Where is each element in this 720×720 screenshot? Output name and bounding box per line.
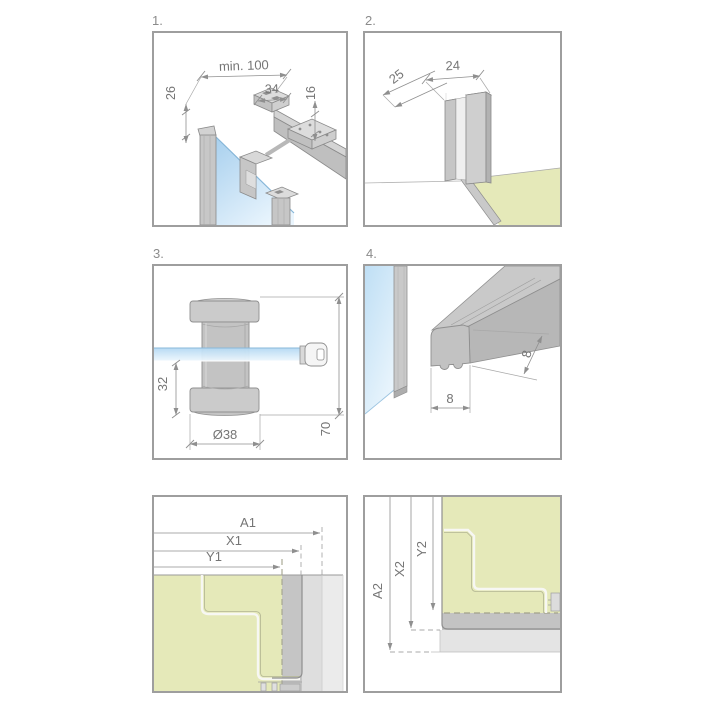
- dimension-25: 25: [383, 66, 447, 107]
- panel-1-illustration: min. 100 34 16 26: [154, 33, 346, 225]
- panel-1: min. 100 34 16 26: [152, 31, 348, 227]
- dimension-8-width: 8: [431, 365, 470, 413]
- dimension-x1: X1: [154, 533, 299, 551]
- dim-label-y1: Y1: [206, 549, 222, 564]
- dimension-x2: X2: [392, 497, 411, 628]
- dim-label-24: 24: [445, 58, 460, 74]
- panel-5: A1 X1 Y1: [152, 495, 348, 693]
- glass-edge-profile: [394, 266, 407, 398]
- panel-4-number: 4.: [366, 246, 377, 261]
- wall-profile: [198, 126, 216, 225]
- panel-6-illustration: A2 X2 Y2: [365, 497, 560, 691]
- dim-label-min-100: min. 100: [219, 57, 269, 74]
- dim-label-y2: Y2: [414, 541, 429, 557]
- dim-label-34: 34: [265, 82, 279, 96]
- dim-label-a2: A2: [370, 583, 385, 599]
- panel-3-number: 3.: [153, 246, 164, 261]
- dimension-y2: Y2: [414, 497, 433, 610]
- dim-label-d38: Ø38: [213, 427, 238, 442]
- glass-panel: [365, 266, 394, 414]
- wall-profile-channel: [445, 92, 491, 184]
- panel-4: 8 8: [363, 264, 562, 460]
- dim-label-32: 32: [155, 377, 170, 391]
- panel-1-number: 1.: [152, 13, 163, 28]
- glass-bar: [154, 348, 304, 361]
- dimension-26: 26: [164, 86, 190, 143]
- dim-label-25: 25: [386, 66, 407, 87]
- dimension-a2: A2: [370, 497, 390, 650]
- dimension-d38: Ø38: [186, 414, 264, 450]
- dim-label-16: 16: [304, 86, 318, 100]
- seal-profile: [431, 266, 560, 370]
- panel-2-number: 2.: [365, 13, 376, 28]
- dimension-32: 32: [155, 360, 180, 418]
- dim-label-8-bottom: 8: [446, 391, 453, 406]
- dim-label-26: 26: [164, 86, 178, 100]
- dim-label-a1: A1: [240, 515, 256, 530]
- floor-areas: [154, 575, 343, 691]
- panel-2-illustration: 24 25: [365, 33, 560, 225]
- panel-2: 24 25: [363, 31, 562, 227]
- diagram-page: 1. 2. 3. 4.: [0, 0, 720, 720]
- dim-label-x2: X2: [392, 561, 407, 577]
- dimension-a1: A1: [154, 515, 320, 533]
- dim-label-x1: X1: [226, 533, 242, 548]
- panel-4-illustration: 8 8: [365, 266, 560, 458]
- panel-5-illustration: A1 X1 Y1: [154, 497, 346, 691]
- panel-3-illustration: 32 Ø38 70: [154, 266, 346, 458]
- panel-3: 32 Ø38 70: [152, 264, 348, 460]
- glass-end-cap: [300, 343, 327, 366]
- dim-label-70: 70: [318, 422, 333, 436]
- dimension-y1: Y1: [154, 549, 280, 567]
- panel-6: A2 X2 Y2: [363, 495, 562, 693]
- dimension-70: 70: [260, 293, 344, 436]
